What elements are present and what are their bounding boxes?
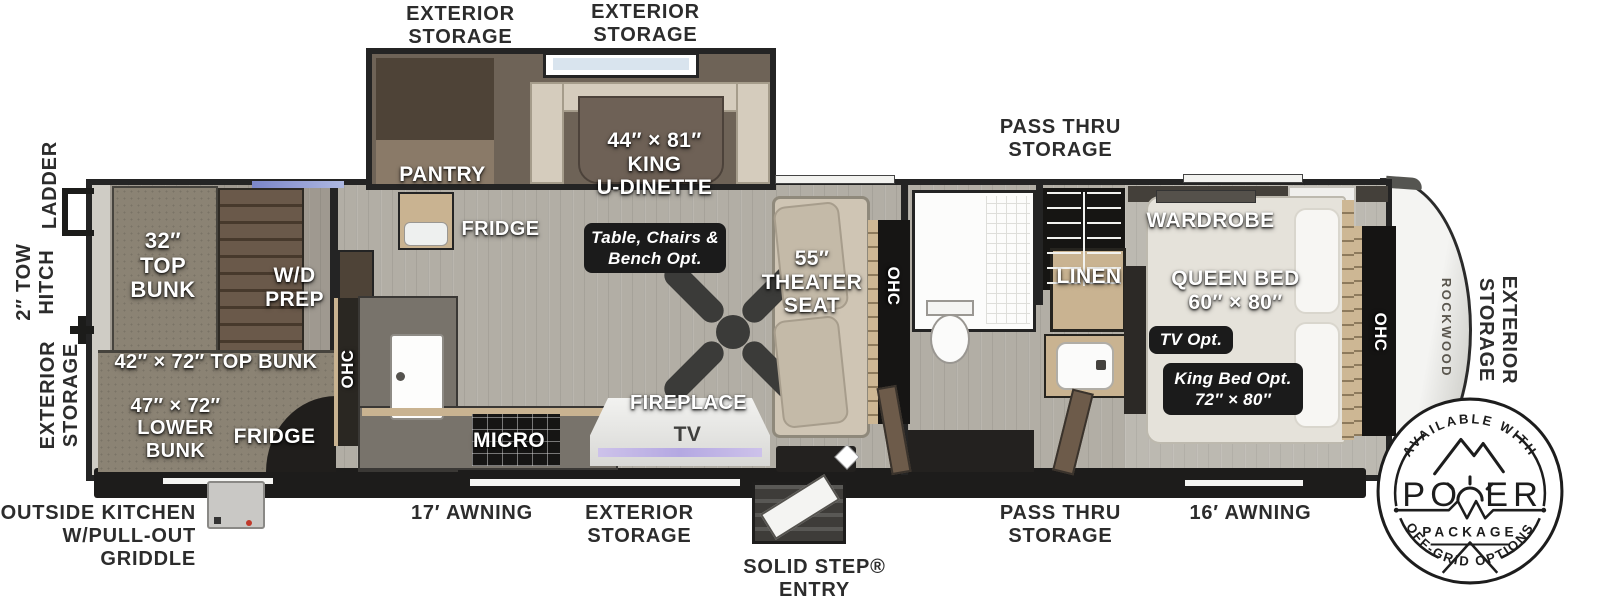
label-queen-bed: QUEEN BED 60″ × 80″ — [1143, 267, 1328, 314]
bathroom-counter — [908, 430, 1034, 472]
ceiling-fan-hub — [716, 315, 750, 349]
badge-power-left: PO — [1402, 476, 1462, 514]
tag-tv-option: TV Opt. — [1149, 326, 1233, 354]
label-awning-17: 17′ AWNING — [382, 502, 562, 525]
label-solid-step-entry: SOLID STEP® ENTRY — [722, 556, 907, 602]
tag-king-bed-option: King Bed Opt. 72″ × 80″ — [1163, 363, 1303, 415]
label-top-bunk-32: 32″ TOP BUNK — [103, 229, 223, 303]
label-exterior-storage-bottom: EXTERIOR STORAGE — [562, 502, 717, 548]
label-pass-thru-storage-bottom: PASS THRU STORAGE — [958, 502, 1163, 548]
label-bunk-fridge: FRIDGE — [222, 425, 327, 449]
badge-divider-dot — [1541, 508, 1546, 513]
label-fireplace: FIREPLACE — [616, 392, 761, 414]
dinette-bench-right — [736, 82, 770, 184]
dinette-bench-left — [530, 82, 564, 184]
kitchen-faucet — [396, 372, 405, 381]
awning-rail-strip-right — [1185, 480, 1303, 486]
label-micro: MICRO — [453, 429, 565, 453]
ceiling-vent — [1156, 190, 1256, 203]
bedroom-window — [1183, 174, 1303, 183]
toilet — [930, 314, 970, 364]
floorplan-canvas: EXTERIOR STORAGE EXTERIOR STORAGE PASS T… — [0, 0, 1600, 604]
bunkroom-led-window — [252, 181, 344, 188]
pantry-cabinet — [376, 58, 494, 140]
bedroom-ohc-trim — [1354, 226, 1362, 436]
label-pass-thru-storage-top: PASS THRU STORAGE — [958, 116, 1163, 162]
outside-kitchen-indicator — [246, 520, 252, 526]
label-top-bunk-42: 42″ × 72″ TOP BUNK — [92, 351, 340, 373]
badge-package-text: PACKAGE — [1422, 524, 1517, 539]
label-outside-kitchen: OUTSIDE KITCHEN W/PULL-OUT GRIDDLE — [0, 502, 196, 570]
shower-tile — [986, 196, 1030, 324]
label-exterior-storage-top-left: EXTERIOR STORAGE — [383, 3, 538, 49]
outside-kitchen-knob — [214, 517, 221, 524]
skylight-glass — [553, 58, 689, 70]
refrigerator-door — [404, 222, 448, 246]
label-exterior-storage-front: EXTERIOR STORAGE — [37, 334, 83, 456]
label-king-u-dinette: 44″ × 81″ KING U-DINETTE — [572, 129, 737, 200]
label-wardrobe: WARDROBE — [1128, 209, 1293, 233]
badge-divider-dot — [1394, 508, 1399, 513]
power-package-badge: AVAILABLE WITH OFF-GRID OPTIONS PO ER PA… — [1372, 393, 1568, 589]
vanity-faucet — [1096, 360, 1106, 370]
label-ohc-theater: OHC — [882, 255, 904, 317]
awning-rail-strip-left — [470, 479, 740, 486]
label-fridge: FRIDGE — [453, 218, 548, 240]
badge-power-right: ER — [1485, 476, 1543, 514]
tow-hitch-icon-bar — [70, 326, 94, 334]
label-theater-seat: 55″ THEATER SEAT — [736, 247, 888, 318]
ladder-icon — [62, 188, 94, 236]
label-exterior-storage-top-mid: EXTERIOR STORAGE — [568, 1, 723, 47]
theater-cushion — [773, 315, 850, 429]
theater-window — [775, 175, 895, 184]
bed-headboard-rail — [1342, 200, 1354, 440]
tag-dinette-option: Table, Chairs & Bench Opt. — [584, 223, 726, 273]
label-exterior-storage-rear: EXTERIOR STORAGE — [1474, 269, 1520, 391]
label-ohc-kitchen: OHC — [337, 338, 359, 400]
label-pantry: PANTRY — [380, 163, 505, 187]
fireplace-glow — [598, 448, 762, 457]
brand-rockwood: ROCKWOOD — [1438, 264, 1456, 392]
label-tv: TV — [655, 423, 720, 447]
label-awning-16: 16′ AWNING — [1163, 502, 1338, 525]
label-wd-prep: W/D PREP — [242, 264, 347, 311]
label-ohc-bedroom: OHC — [1369, 301, 1391, 363]
label-linen: LINEN — [1028, 265, 1150, 289]
label-tow-hitch: 2″ TOW HITCH — [13, 224, 59, 340]
